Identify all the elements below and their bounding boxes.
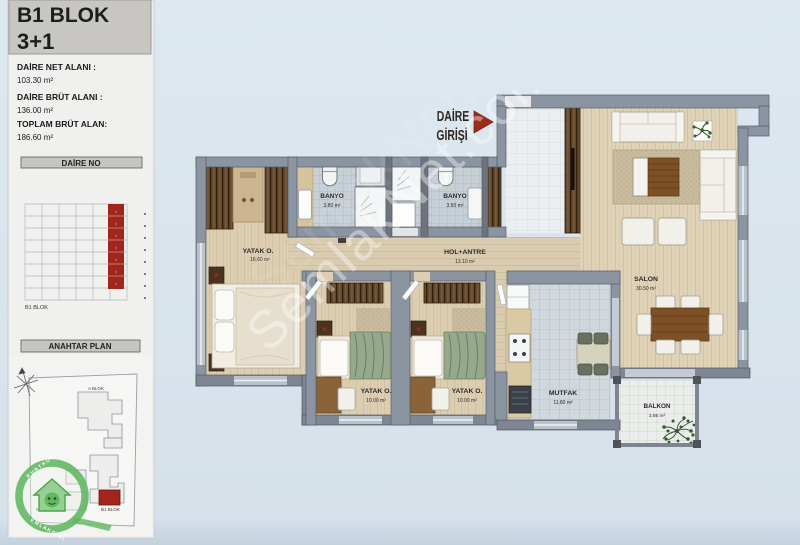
svg-text:HOL+ANTRE: HOL+ANTRE [444,249,486,256]
svg-text:YATAK O.: YATAK O. [361,388,392,395]
svg-text:B1 BLOK: B1 BLOK [25,305,48,311]
svg-text:DAİRE NO: DAİRE NO [61,159,100,168]
svg-text:MUTFAK: MUTFAK [549,390,577,397]
svg-text:4: 4 [115,258,117,262]
svg-text:4: 4 [115,282,117,286]
svg-text:10.00 m²: 10.00 m² [457,398,477,404]
svg-text:4: 4 [115,246,117,250]
svg-text:13.10 m²: 13.10 m² [455,259,475,265]
svg-text:11.80 m²: 11.80 m² [553,400,573,406]
svg-text:4: 4 [115,222,117,226]
svg-text:DAİRE BRÜT ALANI :: DAİRE BRÜT ALANI : [17,92,103,102]
svg-text:DAİRE NET ALANI :: DAİRE NET ALANI : [17,62,96,72]
svg-text:ANAHTAR PLAN: ANAHTAR PLAN [49,342,112,351]
svg-text:3.85 m²: 3.85 m² [649,413,666,419]
svg-text:103.30 m²: 103.30 m² [17,76,53,85]
svg-text:B1 BLOK: B1 BLOK [101,507,120,512]
svg-text:30.50 m²: 30.50 m² [636,286,656,292]
svg-text:10.00 m²: 10.00 m² [366,398,386,404]
svg-text:4: 4 [115,210,117,214]
svg-text:A BLOK: A BLOK [88,386,104,391]
svg-text:186.60 m²: 186.60 m² [17,133,53,142]
svg-text:TOPLAM BRÜT ALAN:: TOPLAM BRÜT ALAN: [17,119,107,129]
svg-text:3+1: 3+1 [17,29,54,54]
svg-text:B1 BLOK: B1 BLOK [17,4,109,27]
svg-text:4: 4 [115,234,117,238]
svg-text:136.00 m²: 136.00 m² [17,106,53,115]
svg-text:YATAK O.: YATAK O. [452,388,483,395]
svg-text:4: 4 [115,270,117,274]
svg-text:SALON: SALON [634,276,658,283]
svg-text:3.50 m²: 3.50 m² [447,203,464,209]
svg-text:BALKON: BALKON [644,403,671,410]
